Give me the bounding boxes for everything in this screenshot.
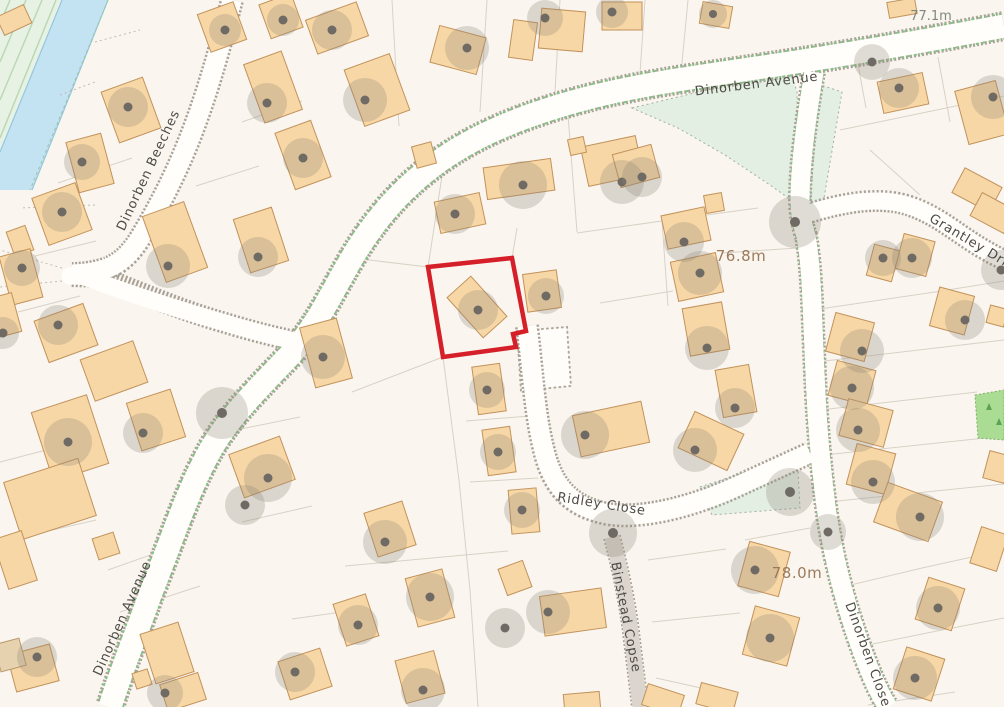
spot-height-78-0: 78.0m <box>772 564 823 582</box>
map-canvas[interactable]: Dinorben Beeches Dinorben Avenue Dinorbe… <box>0 0 1004 707</box>
green-patch <box>975 390 1004 440</box>
spot-height-77-1: 77.1m <box>910 9 952 24</box>
spot-height-76-8: 76.8m <box>716 247 767 265</box>
